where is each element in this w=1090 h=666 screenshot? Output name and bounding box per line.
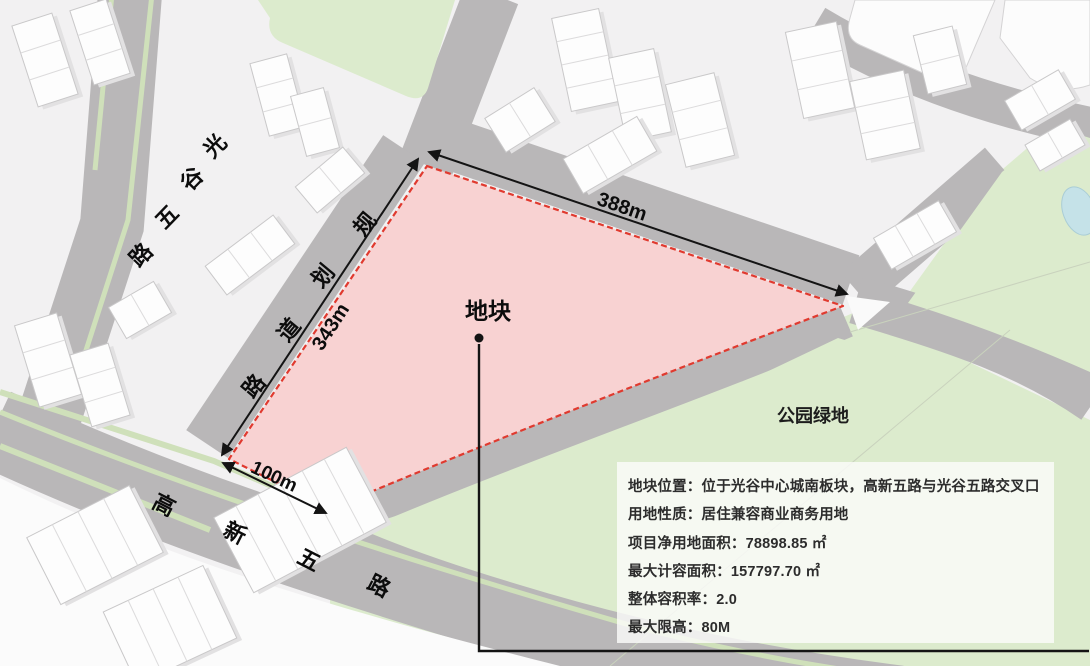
building xyxy=(291,87,345,161)
plot-label: 地块 xyxy=(465,298,511,324)
road-char: 五 xyxy=(150,200,183,233)
info-line-max-height: 最大限高：80M xyxy=(628,614,1054,642)
info-line-location: 地块位置：位于光谷中心城南板块，高新五路与光谷五路交叉口 xyxy=(628,473,1054,501)
site-plan-map: 388m 343m 100m 光 谷 五 路 规 划 道 路 高 新 五 路 地… xyxy=(0,0,1090,666)
building xyxy=(665,72,739,171)
info-line-land-use: 用地性质：居住兼容商业商务用地 xyxy=(628,501,1054,529)
info-line-far: 整体容积率：2.0 xyxy=(628,586,1054,614)
plot-info-panel: 地块位置：位于光谷中心城南板块，高新五路与光谷五路交叉口 用地性质：居住兼容商业… xyxy=(617,462,1054,643)
leader-dot xyxy=(475,334,484,343)
road-char: 光 xyxy=(198,129,232,163)
building xyxy=(12,12,83,111)
road-char: 谷 xyxy=(175,162,209,196)
info-line-gfa: 最大计容面积：157797.70 ㎡ xyxy=(628,558,1054,586)
park-label: 公园绿地 xyxy=(777,405,849,426)
info-line-net-area: 项目净用地面积：78898.85 ㎡ xyxy=(628,530,1054,558)
